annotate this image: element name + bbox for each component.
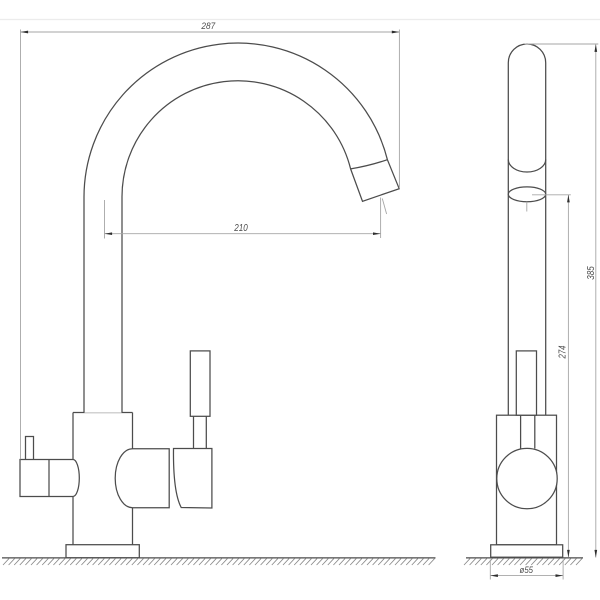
svg-text:ø55: ø55 bbox=[520, 565, 534, 576]
svg-text:287: 287 bbox=[201, 21, 216, 32]
svg-text:210: 210 bbox=[233, 223, 248, 234]
svg-text:385: 385 bbox=[586, 266, 597, 280]
svg-text:274: 274 bbox=[558, 345, 569, 359]
